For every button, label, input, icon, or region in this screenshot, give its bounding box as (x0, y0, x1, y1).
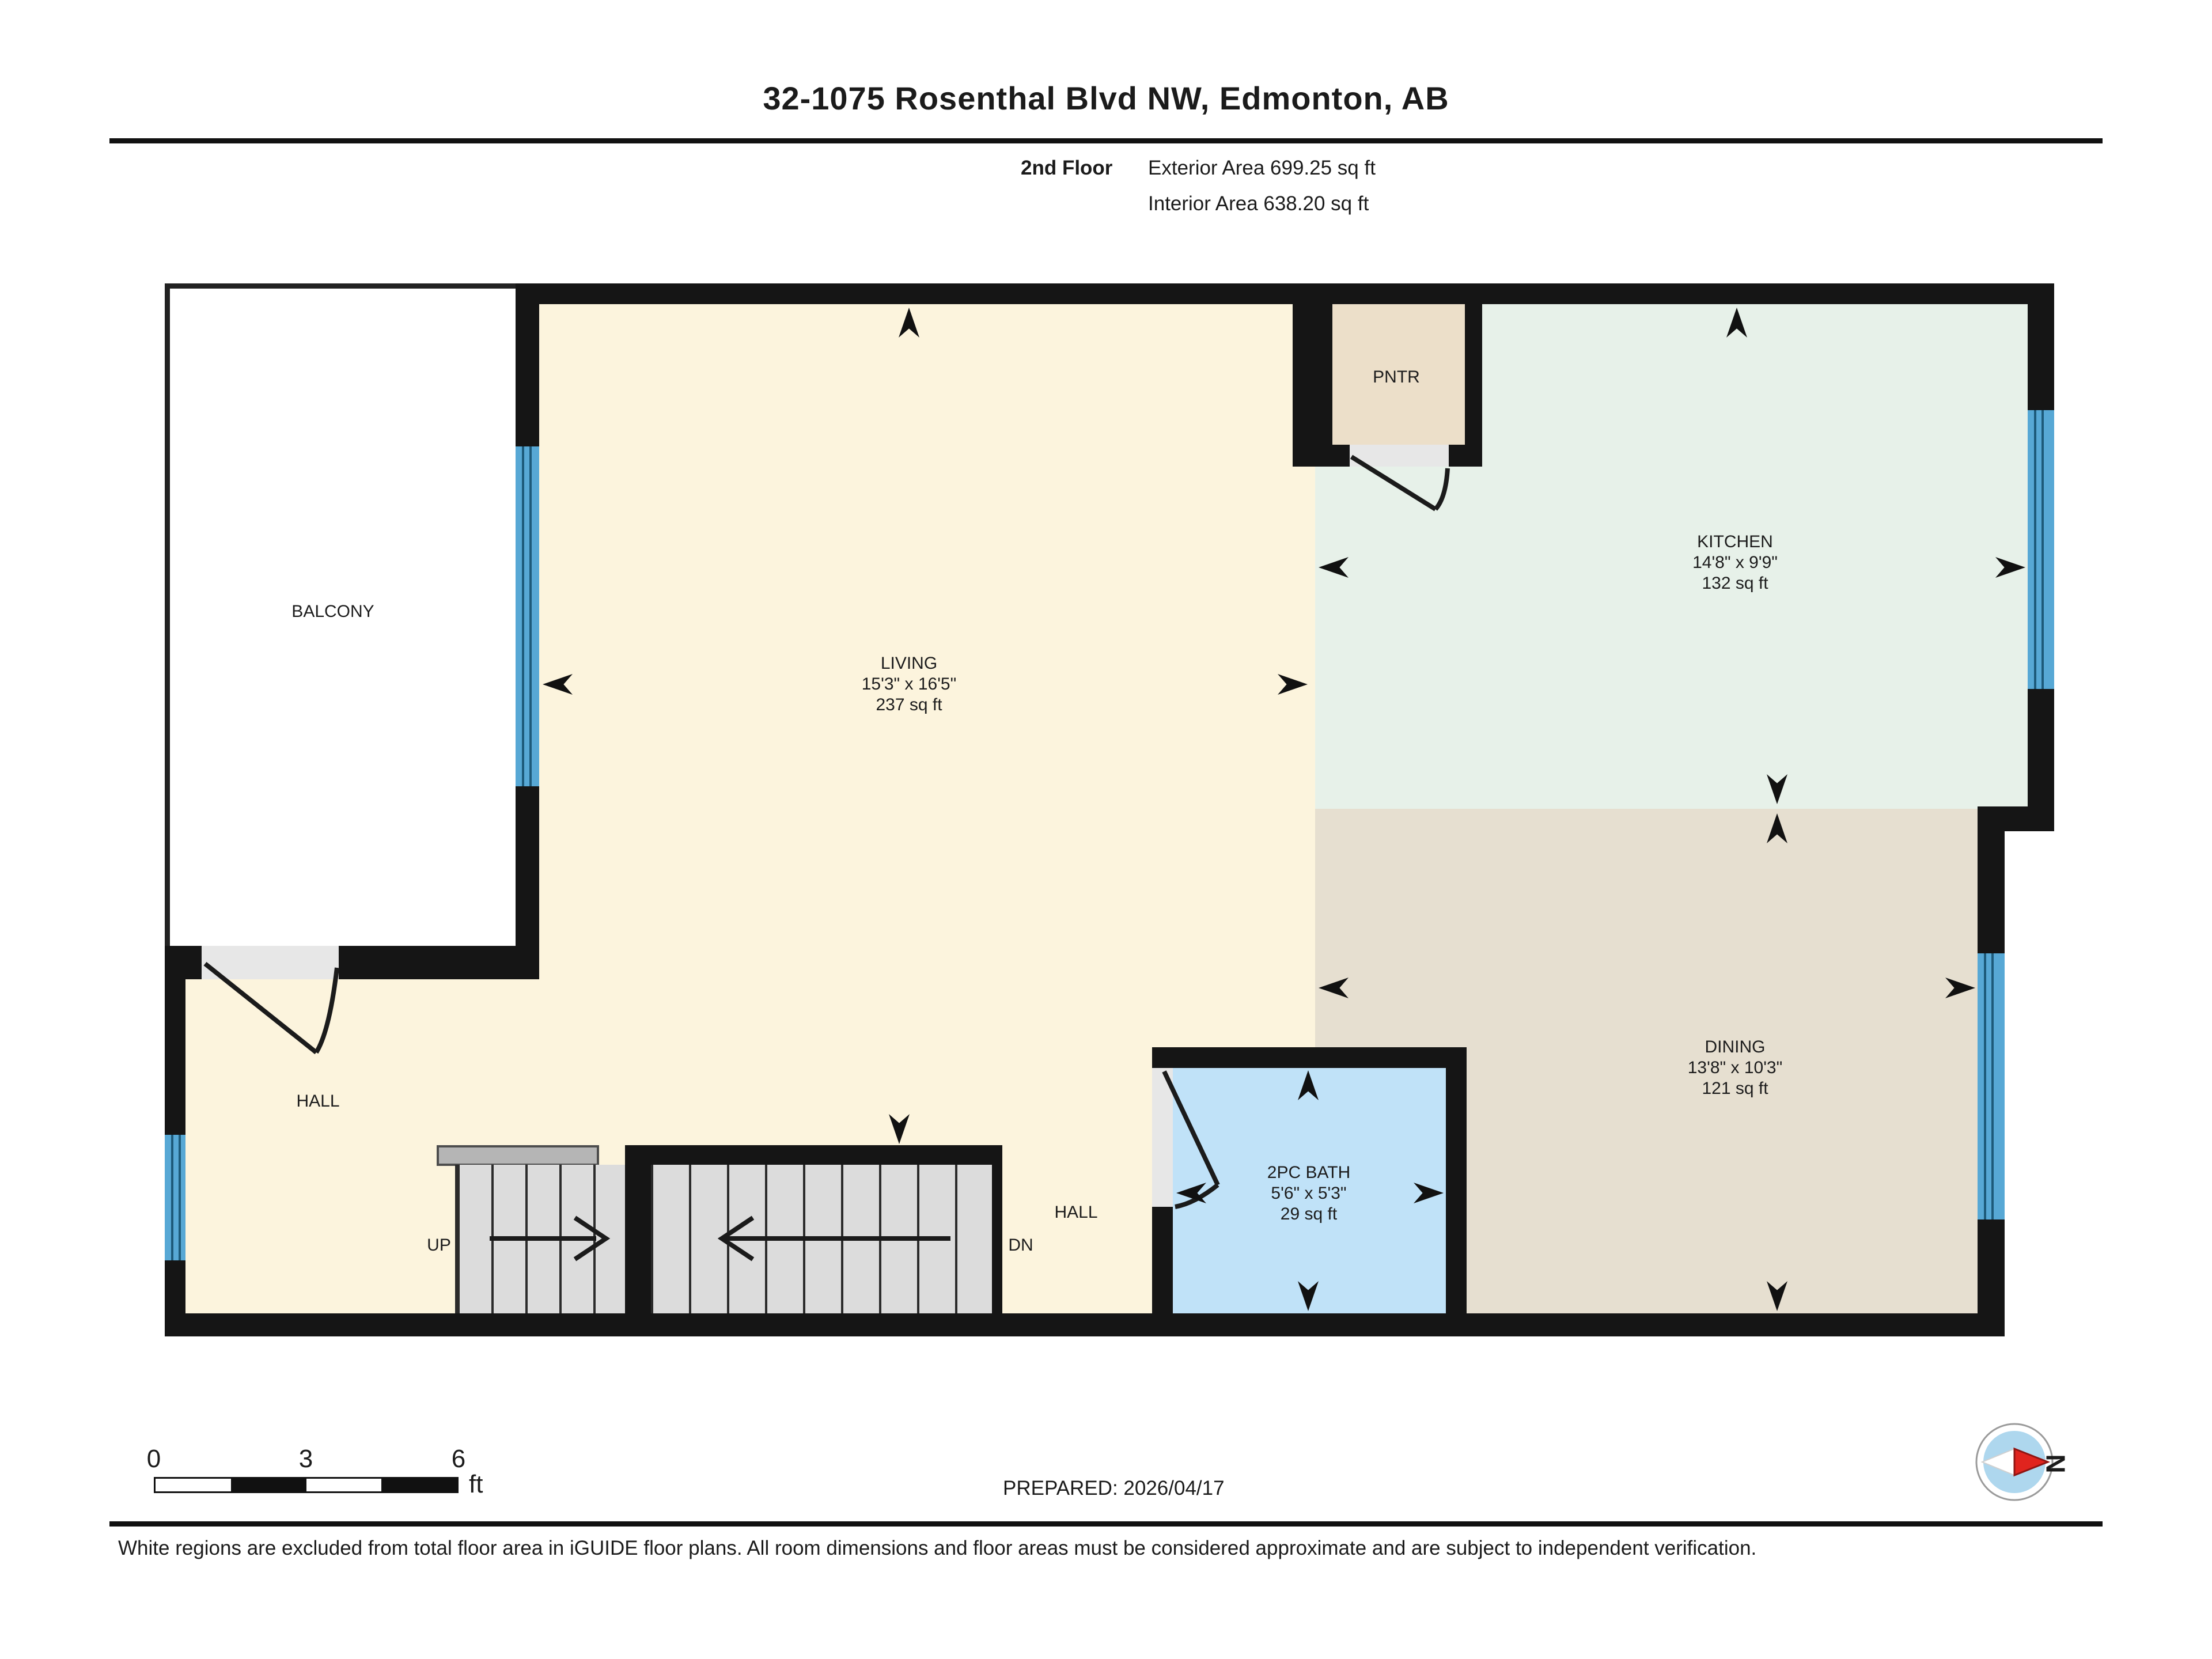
balcony-border-left (165, 283, 170, 946)
bath-door-threshold (1152, 1068, 1173, 1207)
wall-step (1978, 806, 2054, 831)
scale-segment (306, 1479, 382, 1491)
scale-unit-label: ft (469, 1470, 483, 1499)
living-label: LIVING 15'3" x 16'5" 237 sq ft (862, 653, 957, 715)
hall-right-label: HALL (1054, 1202, 1097, 1223)
scale-segment (381, 1479, 457, 1491)
pantry-door-threshold (1350, 445, 1449, 467)
scale-tick-6: 6 (452, 1445, 465, 1474)
bath-area: 29 sq ft (1267, 1204, 1350, 1225)
scale-segment (156, 1479, 231, 1491)
wall-dining-east-lower (1978, 1219, 2005, 1336)
dining-area: 121 sq ft (1688, 1078, 1783, 1099)
living-dims: 15'3" x 16'5" (862, 674, 957, 695)
kitchen-label: KITCHEN 14'8" x 9'9" 132 sq ft (1692, 532, 1778, 594)
wall-dining-east-upper (1978, 831, 2005, 953)
wall-pantry-south-left (1332, 445, 1350, 467)
scale-segment (231, 1479, 306, 1491)
wall-kitchen-east-upper (2028, 283, 2054, 410)
stairs-down-treads (651, 1165, 994, 1313)
balcony-floor (165, 283, 539, 979)
living-name: LIVING (862, 653, 957, 674)
pantry-label: PNTR (1373, 367, 1420, 388)
scale-bar (154, 1477, 459, 1493)
wall-bottom (165, 1313, 2005, 1336)
kitchen-name: KITCHEN (1692, 532, 1778, 552)
stair-divider-wall (625, 1145, 651, 1313)
wall-top (516, 283, 2054, 304)
wall-bath-east (1446, 1068, 1467, 1313)
compass-north-label: N (2040, 1454, 2071, 1473)
bath-dims: 5'6" x 5'3" (1267, 1183, 1350, 1204)
scale-tick-0: 0 (147, 1445, 161, 1474)
kitchen-area: 132 sq ft (1692, 573, 1778, 594)
wall-pantry-south-right (1449, 445, 1465, 467)
window-hall-west (165, 1135, 185, 1260)
kitchen-dims: 14'8" x 9'9" (1692, 552, 1778, 573)
stair-right-rail (992, 1165, 1002, 1313)
bath-name: 2PC BATH (1267, 1162, 1350, 1183)
balcony-border-top (165, 283, 516, 289)
window-kitchen-east (2028, 410, 2054, 689)
bath-label: 2PC BATH 5'6" x 5'3" 29 sq ft (1267, 1162, 1350, 1225)
exterior-area: Exterior Area 699.25 sq ft (1148, 157, 1376, 180)
floor-label: 2nd Floor (1021, 157, 1112, 180)
wall-bath-west (1152, 1207, 1173, 1313)
window-living-west (516, 446, 539, 786)
living-area: 237 sq ft (862, 695, 957, 715)
compass-south-needle (1982, 1449, 2014, 1475)
wall-living-west-upper (516, 283, 539, 446)
dining-label: DINING 13'8" x 10'3" 121 sq ft (1688, 1037, 1783, 1099)
wall-balcony-bottom-left (165, 946, 202, 979)
disclaimer-text: White regions are excluded from total fl… (118, 1537, 1756, 1560)
scale-tick-3: 3 (299, 1445, 313, 1474)
floorplan-page: 32-1075 Rosenthal Blvd NW, Edmonton, AB … (0, 0, 2212, 1659)
dining-dims: 13'8" x 10'3" (1688, 1058, 1783, 1078)
stairs-down-label: DN (1008, 1235, 1033, 1256)
interior-area: Interior Area 638.20 sq ft (1148, 192, 1369, 215)
header-divider (109, 138, 2103, 143)
hall-left-label: HALL (296, 1091, 339, 1112)
footer-divider (109, 1521, 2103, 1527)
balcony-label: BALCONY (291, 601, 374, 622)
stairs-up-treads (455, 1165, 627, 1313)
window-dining-east (1978, 953, 2005, 1219)
prepared-date: PREPARED: 2026/04/17 (1003, 1477, 1225, 1500)
balcony-door-threshold (202, 946, 339, 979)
stairs-up-label: UP (427, 1235, 451, 1256)
dining-name: DINING (1688, 1037, 1783, 1058)
wall-pantry-east (1465, 283, 1482, 467)
stair-top-rail (651, 1145, 1002, 1165)
wall-balcony-bottom-right (339, 946, 539, 979)
wall-pantry-west (1293, 283, 1332, 467)
wall-bath-north (1152, 1047, 1467, 1068)
stair-landing-cap (437, 1145, 599, 1166)
page-title: 32-1075 Rosenthal Blvd NW, Edmonton, AB (0, 79, 2212, 117)
